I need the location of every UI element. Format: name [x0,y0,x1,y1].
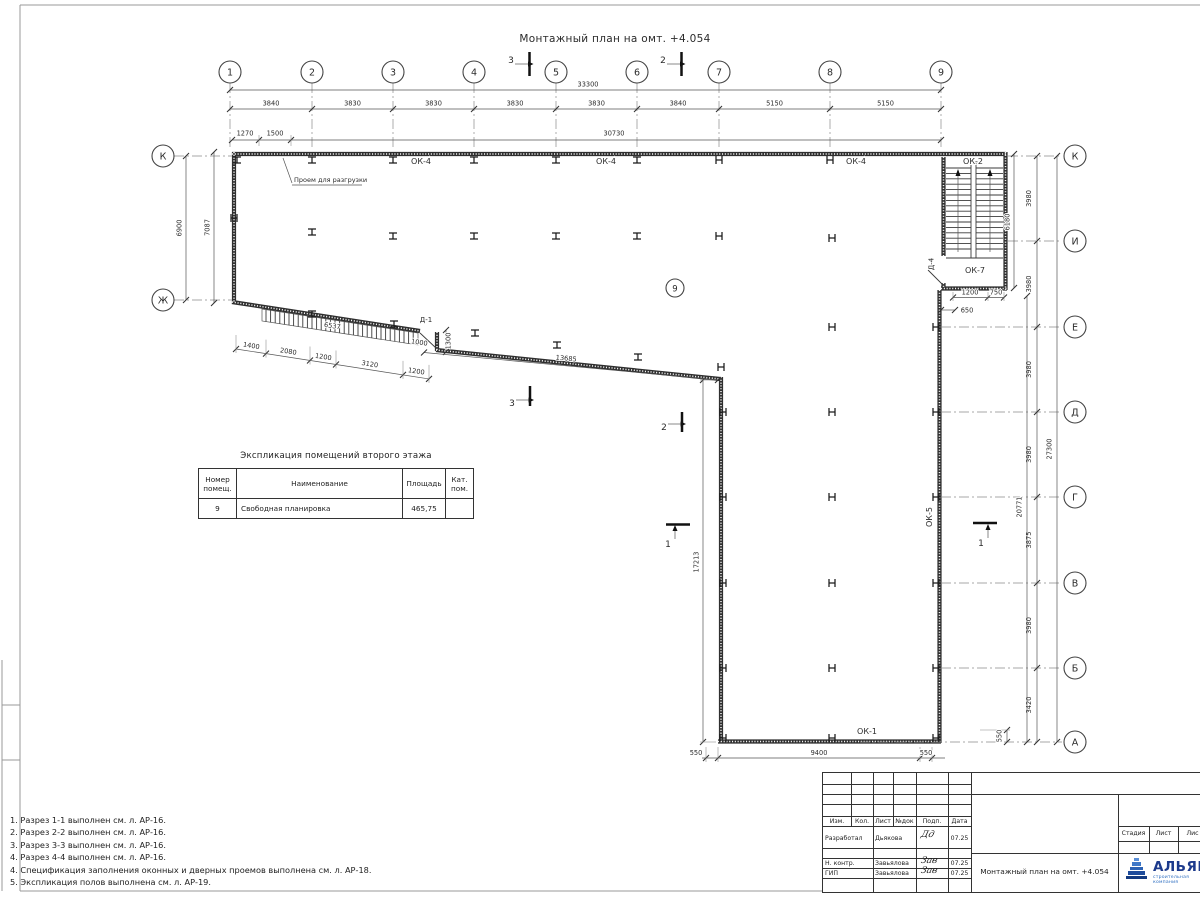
col-header-cat: Кат. пом. [446,469,473,499]
window-label-ok4: ОК-4 [596,157,616,166]
tb-header-ndok: №док [893,818,916,825]
dim-text: 2 [309,68,315,79]
dim-text: А [1072,738,1079,749]
note-line: 4. Разрез 4-4 выполнен см. л. АР-16. [10,851,371,863]
tb-name: Завьялова [875,870,909,877]
drawing-sheet: Монтажный план на омт. +4.054 Проем для … [0,0,1200,900]
column-symbol [389,157,397,163]
window-label-ok1: ОК-1 [857,727,877,736]
dim-text: 7 [716,68,722,79]
column-symbol [389,233,397,239]
dim-text: 1300 [445,333,453,350]
column-symbol [829,408,835,416]
dim-text: 6900 [176,220,184,237]
dim-text: 3980 [1025,446,1033,463]
tb-role: Разработал [825,835,863,842]
column-symbol [633,157,641,163]
alliance-logo-subtitle: строительная компания [1153,875,1200,885]
note-line: 5. Экспликация полов выполнена см. л. АР… [10,876,371,888]
dim-text: 550 [920,749,933,757]
dim-text: 5 [553,68,559,79]
table-cell [446,499,473,518]
dim-text: Ж [158,296,169,307]
tb-sheet-header: Лист [1149,830,1178,837]
tb-doc-title: Монтажный план на омт. +4.054 [973,853,1116,890]
alliance-logo-name: АЛЬЯН [1153,859,1200,875]
opening-label: Проем для разгрузки [294,176,367,184]
dim-text: 3830 [507,100,524,108]
stair-arrow-head [956,169,961,176]
dim-text: 6 [634,68,640,79]
dim-text: 550 [996,730,1004,743]
dim-text: Е [1072,323,1078,334]
room-schedule-title: Экспликация помещений второго этажа [198,451,474,461]
col-header-area: Площадь [403,469,446,499]
alliance-logo-icon [1124,858,1148,882]
dim-text: 6180 [1004,214,1012,231]
section-mark-1: 1 [665,540,671,550]
tb-signature: Зав [920,856,939,866]
door-label-d1: Д-1 [420,316,432,324]
column-symbol [716,232,722,240]
drawing-title: Монтажный план на омт. +4.054 [519,33,710,45]
section-mark-1: 1 [978,539,984,549]
dim-text: 3840 [670,100,687,108]
dim-text: 2080 [279,346,297,356]
window-label-ok4: ОК-4 [411,157,431,166]
column-symbol [552,157,560,163]
tb-header-data: Дата [948,818,971,825]
column-symbol [308,157,316,163]
tb-stage-header: Стадия [1118,830,1149,837]
dim-text: 1400 [242,341,260,351]
column-symbol [716,156,722,164]
room-number: 9 [672,285,677,295]
tb-header-list: Лист [873,818,893,825]
dim-text: 4 [471,68,477,79]
section-marks: 3 2 3 2 1 1 [508,52,997,550]
window-label-ok5: ОК-5 [925,507,934,527]
tb-sheets-header: Лис [1178,830,1200,837]
column-symbol [829,323,835,331]
dim-text: 9 [938,68,944,79]
dim-text: 3875 [1025,532,1033,549]
tb-header-izm: Изм. [823,818,851,825]
dim-text: 750 [990,289,1003,297]
column-symbol [829,493,835,501]
room-schedule: Экспликация помещений второго этажа Номе… [198,451,474,519]
section-mark-2: 2 [660,56,666,66]
table-cell: Свободная планировка [237,499,403,518]
dim-text: 3980 [1025,361,1033,378]
opening-leader: Проем для разгрузки [283,158,367,185]
dim-text: 3980 [1025,276,1033,293]
column-symbol [552,233,560,239]
dim-text: 1500 [267,130,284,138]
window-label-ok7: ОК-7 [965,266,985,275]
window-label-ok4: ОК-4 [846,157,866,166]
tb-signature: Дд [920,830,936,840]
dim-text: Б [1072,664,1079,675]
dim-text: 3830 [588,100,605,108]
dim-text: 3840 [263,100,280,108]
table-cell: 465,75 [403,499,446,518]
dim-text: Г [1072,493,1078,504]
dim-text: 650 [961,307,974,315]
window-label-ok2: ОК-2 [963,157,983,166]
tb-role: Н. контр. [825,860,855,867]
dim-text: К [160,152,167,163]
dim-text: 30730 [604,130,625,138]
column-symbol [633,233,641,239]
dim-text: 550 [690,749,703,757]
column-symbol [308,229,316,235]
dim-text: 17213 [693,552,701,573]
tb-signature: Зав [920,866,939,876]
note-line: 4. Спецификация заполнения оконных и две… [10,864,371,876]
room-schedule-table: Номер помещ. Наименование Площадь Кат. п… [198,468,474,519]
dim-text: 1200 [962,289,979,297]
dim-text: 5150 [766,100,783,108]
dim-text: 5150 [877,100,894,108]
column-symbol [470,157,478,163]
tb-header-podp: Подп. [916,818,948,825]
column-symbol [829,664,835,672]
dim-text: 3980 [1025,190,1033,207]
dim-text: Д [1071,408,1078,419]
sheet-frame [2,5,1200,891]
section-mark-2: 2 [661,423,667,433]
dim-text: 1270 [237,130,254,138]
dim-text: 1200 [314,352,332,362]
door-label-d4: Д-4 [928,257,936,270]
dim-text: 7087 [204,219,212,236]
dim-text: В [1072,579,1079,590]
dim-text: 1 [227,68,233,79]
col-header-name: Наименование [237,469,403,499]
column-symbol [718,363,724,371]
tb-date: 07.25 [948,835,971,842]
dim-text: 3120 [361,359,379,369]
tb-date: 07.25 [948,870,971,877]
dim-text: 1200 [407,366,425,376]
notes: 1. Разрез 1-1 выполнен см. л. АР-16. 2. … [10,814,371,889]
tb-header-kol: Кол. [851,818,873,825]
tb-date: 07.25 [948,860,971,867]
column-symbol [553,342,561,348]
dim-text: 3420 [1025,697,1033,714]
stairwell [946,168,1003,252]
section-mark-3: 3 [509,399,515,409]
column-symbol [829,234,835,242]
dim-text: 3980 [1025,617,1033,634]
dim-text: 33300 [578,81,599,89]
column-symbol [471,330,479,336]
note-line: 2. Разрез 2-2 выполнен см. л. АР-16. [10,826,371,838]
table-cell: 9 [199,499,237,518]
tb-name: Дьякова [875,835,902,842]
column-symbol [827,156,833,164]
dim-text: 3 [390,68,396,79]
note-line: 3. Разрез 3-3 выполнен см. л. АР-16. [10,839,371,851]
tb-role: ГИП [825,870,838,877]
dim-text: 8 [827,68,833,79]
plan-svg: Монтажный план на омт. +4.054 Проем для … [0,0,1200,900]
dim-text: И [1071,237,1078,248]
door-d4-leaf [928,270,943,285]
dim-text: 20771 [1016,497,1024,518]
column-symbol [829,579,835,587]
dim-text: К [1072,152,1079,163]
tb-name: Завьялова [875,860,909,867]
dim-text: 9400 [811,749,828,757]
walls [232,152,1007,743]
column-symbol [634,354,642,360]
dim-text: 1000 [410,337,428,347]
dim-text: 27300 [1046,439,1054,460]
col-header-number: Номер помещ. [199,469,237,499]
dim-text: 3830 [425,100,442,108]
dim-text: 3830 [344,100,361,108]
column-symbol [470,233,478,239]
stair-arrow-head [988,169,993,176]
dim-line [236,349,429,379]
generated-geometry: 123456789КИЕДГВБАКЖ384038303830383038303… [152,61,1086,762]
section-mark-3: 3 [508,56,514,66]
note-line: 1. Разрез 1-1 выполнен см. л. АР-16. [10,814,371,826]
title-block: Изм. Кол. Лист №док Подп. Дата Разработа… [822,772,1200,893]
